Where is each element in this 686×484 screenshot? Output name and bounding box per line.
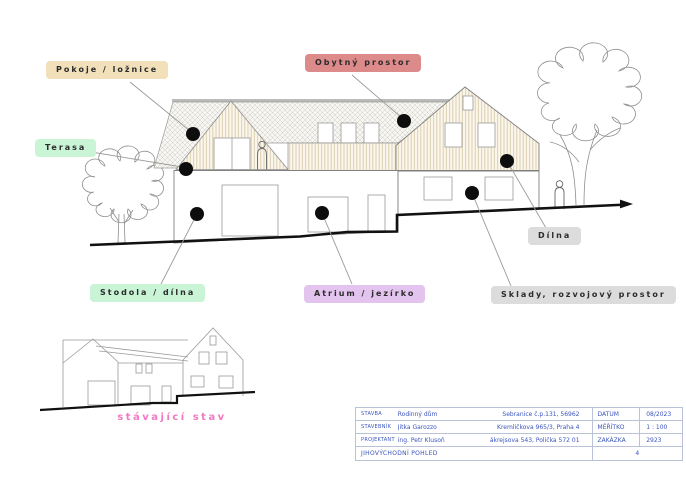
callout-label-stodola: Stodola / dílna [90,284,205,302]
tb-projektant-value: ing. Petr Klusoň [398,434,490,446]
roof-windows [318,123,379,143]
house-elevation [154,87,539,243]
callout-label-pokoje: Pokoje / ložnice [46,61,168,79]
callout-dot-terasa [179,162,193,176]
callout-label-atrium: Atrium / jezírko [304,285,425,303]
tb-datum-value: 08/2023 [639,408,682,420]
small-ground-line [40,392,255,410]
tb-view-name: JIHOVÝCHODNÍ POHLED [356,447,592,460]
tb-stavebnik-value: Jitka Garozzo [398,421,490,433]
drawing-sheet: Pokoje / ložnice Obytný prostor Terasa S… [0,0,686,484]
tb-stavba-label: STAVBA [356,408,398,420]
callout-dot-pokoje [186,127,200,141]
callout-dot-stodola [190,207,204,221]
title-block-row-footer: JIHOVÝCHODNÍ POHLED 4 [356,447,682,460]
callout-dot-atrium [315,206,329,220]
callout-dot-sklady [465,186,479,200]
tb-sheet-number: 4 [592,447,682,460]
title-block-row-stavebnik: STAVEBNÍK Jitka Garozzo Kremličkova 965/… [356,421,682,434]
tb-stavba-address: Sebranice č.p.131, 56962 [490,408,591,420]
tb-projektant-address: Zákrejsova 543, Polička 572 01 [490,434,591,446]
callout-label-obytny: Obytný prostor [305,54,421,72]
tb-stavebnik-address: Kremličkova 965/3, Praha 4 [490,421,591,433]
tree-right-icon [537,43,641,205]
tree-left-icon [82,146,163,243]
callout-label-dilna: Dílna [528,227,581,245]
callout-dot-dilna [500,154,514,168]
tb-meritko-value: 1 : 100 [639,421,682,433]
tb-zakazka-label: ZAKÁZKA [592,434,640,446]
callout-dot-obytny [397,114,411,128]
upper-wall-band [288,143,398,171]
tb-stavebnik-label: STAVEBNÍK [356,421,398,433]
small-elevation-drawing [40,328,255,410]
tb-stavba-value: Rodinný dům [398,408,490,420]
person-figure-right [555,181,564,209]
tb-projektant-label: PROJEKTANT [356,434,398,446]
callout-label-sklady: Sklady, rozvojový prostor [491,286,676,304]
ground-arrow-icon [620,200,633,209]
title-block-row-stavba: STAVBA Rodinný dům Sebranice č.p.131, 56… [356,408,682,421]
title-block: STAVBA Rodinný dům Sebranice č.p.131, 56… [355,407,683,461]
existing-state-caption: stávající stav [112,412,232,424]
tb-datum-label: DATUM [592,408,640,420]
title-block-row-projektant: PROJEKTANT ing. Petr Klusoň Zákrejsova 5… [356,434,682,447]
tb-meritko-label: MĚŘÍTKO [592,421,640,433]
tb-zakazka-value: 2923 [639,434,682,446]
callout-label-terasa: Terasa [35,139,96,157]
